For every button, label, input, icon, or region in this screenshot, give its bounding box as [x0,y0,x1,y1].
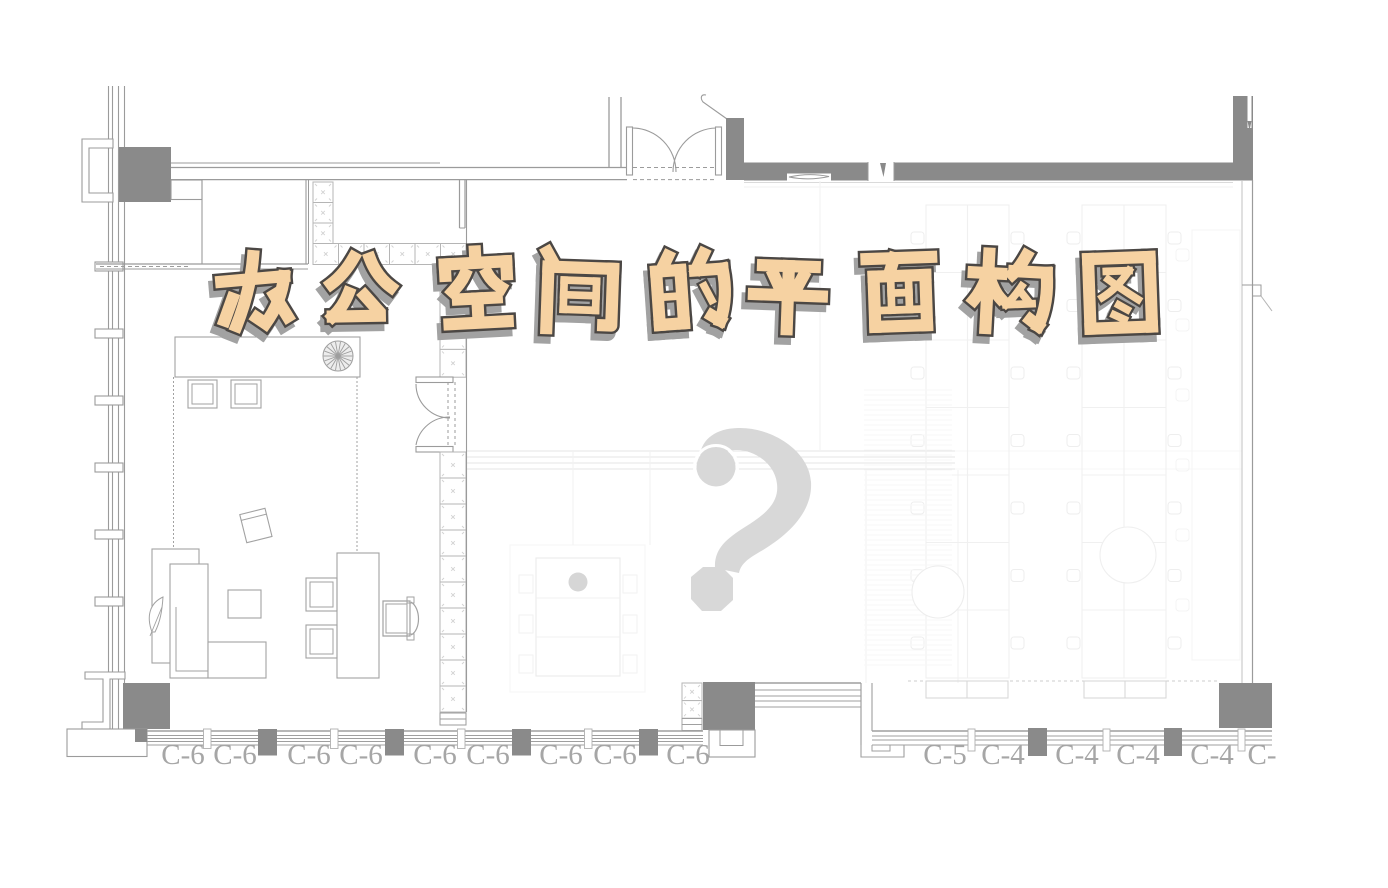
svg-text:C-6: C-6 [339,739,383,771]
svg-text:C-6: C-6 [287,739,331,771]
svg-text:C-6: C-6 [466,739,510,771]
svg-text:C-6: C-6 [593,739,637,771]
svg-text:C-6: C-6 [161,739,205,771]
svg-text:C-6: C-6 [413,739,457,771]
svg-text:C-6: C-6 [666,739,710,771]
svg-text:C-6: C-6 [213,739,257,771]
svg-text:C-4: C-4 [1190,739,1234,771]
svg-text:C-: C- [1248,739,1277,771]
svg-text:C-5: C-5 [923,739,967,771]
svg-text:C-4: C-4 [1055,739,1099,771]
svg-text:C-4: C-4 [1116,739,1160,771]
svg-text:C-4: C-4 [981,739,1025,771]
svg-text:C-6: C-6 [539,739,583,771]
